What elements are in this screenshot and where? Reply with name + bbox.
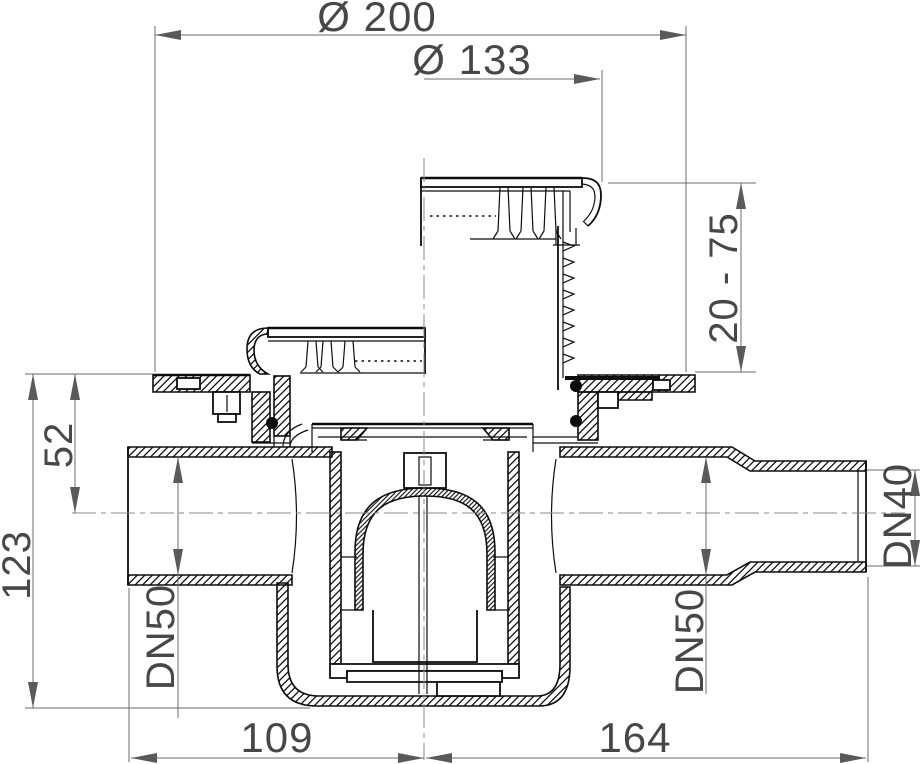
dim-label-center-to-inlet: 109 bbox=[240, 714, 313, 761]
dimension-height-adjust: 20 - 75 bbox=[608, 183, 756, 372]
dim-label-axis-depth: 52 bbox=[37, 422, 81, 469]
dim-label-grate-diameter: Ø 133 bbox=[412, 36, 531, 83]
dim-label-outer-diameter: Ø 200 bbox=[317, 0, 436, 40]
o-ring-seal-right-2 bbox=[570, 415, 582, 427]
inlet-pipe-left bbox=[128, 447, 332, 585]
grate-raised bbox=[421, 178, 601, 246]
grate-lowered bbox=[247, 328, 425, 374]
technical-drawing: Ø 200 Ø 133 20 - 75 52 123 DN50 DN50 bbox=[0, 0, 920, 764]
o-ring-seal-right-1 bbox=[570, 380, 582, 392]
dim-label-total-depth: 123 bbox=[0, 530, 39, 600]
dim-label-inlet-left: DN50 bbox=[139, 584, 183, 690]
o-ring-seal-left bbox=[266, 417, 278, 429]
dimension-grate-diameter: Ø 133 bbox=[412, 36, 602, 182]
telescopic-riser bbox=[558, 226, 574, 390]
outlet-pipe-right bbox=[552, 447, 867, 585]
dome-insert bbox=[340, 453, 510, 694]
dim-label-outlet-end: DN40 bbox=[876, 463, 920, 569]
dimension-axis-depth: 52 bbox=[25, 374, 153, 513]
dimension-dn40: DN40 bbox=[867, 463, 920, 569]
dim-label-height-adjust: 20 - 75 bbox=[702, 212, 746, 344]
body-sockets bbox=[252, 376, 618, 447]
dim-label-outlet-right: DN50 bbox=[668, 588, 712, 694]
label-dn50-left: DN50 bbox=[139, 457, 183, 718]
technical-drawing-page: Ø 200 Ø 133 20 - 75 52 123 DN50 DN50 bbox=[0, 0, 920, 764]
dim-label-center-to-outlet: 164 bbox=[598, 714, 671, 761]
